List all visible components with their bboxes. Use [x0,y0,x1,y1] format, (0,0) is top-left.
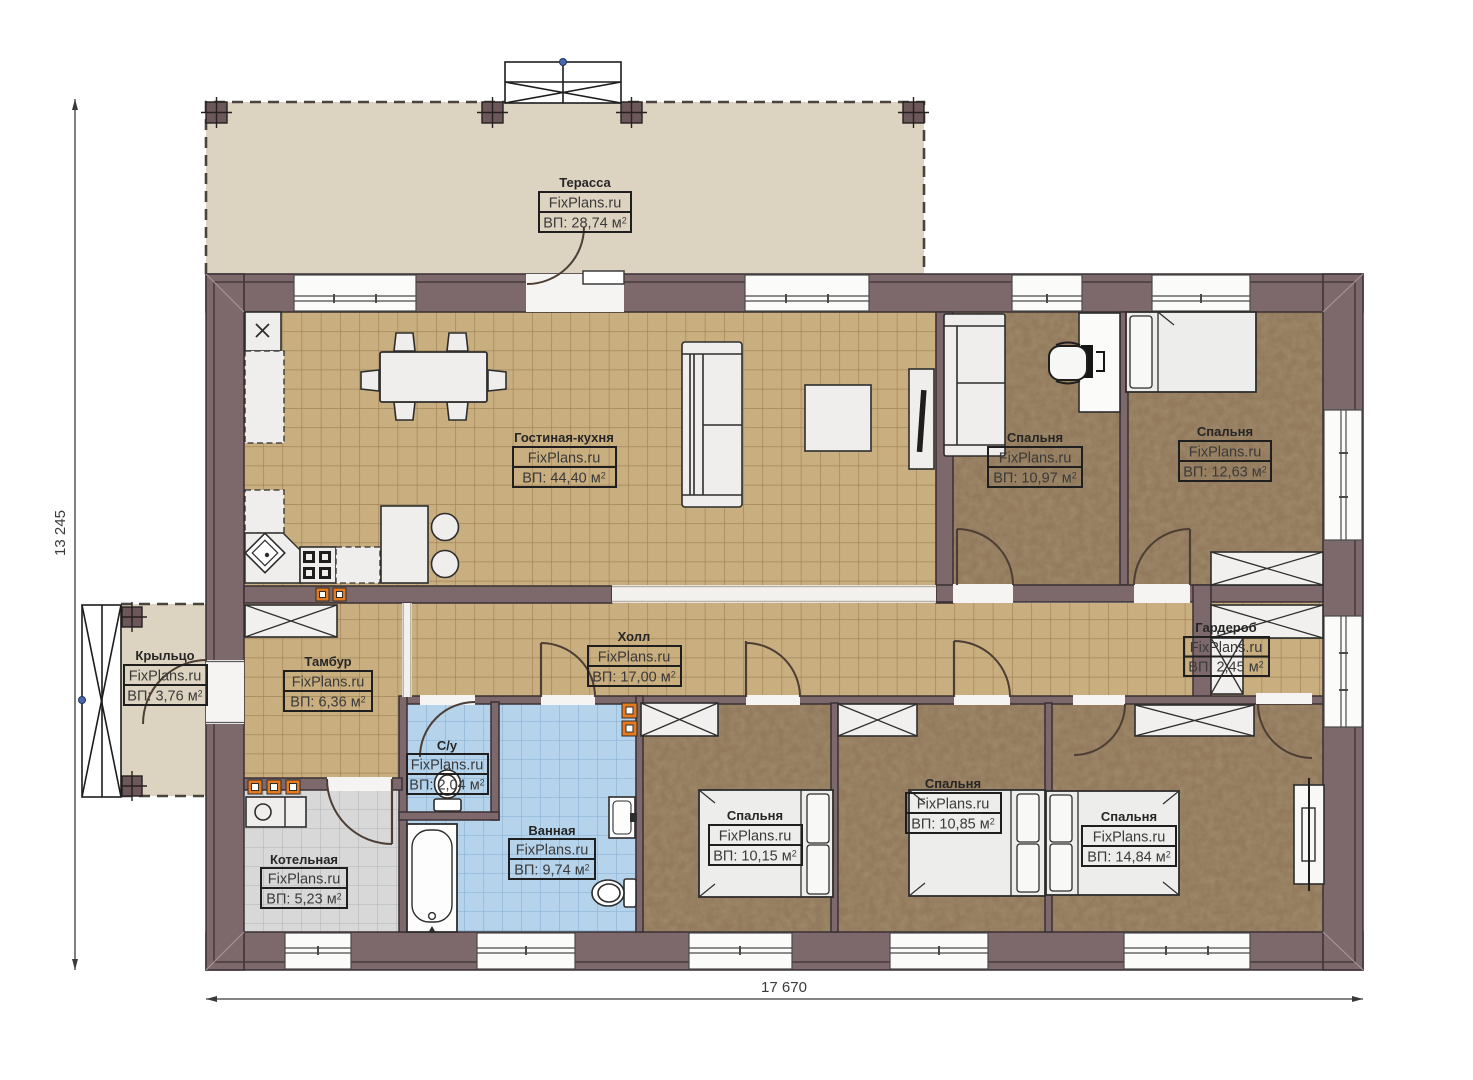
svg-text:ВП: 3,76 м2: ВП: 3,76 м2 [127,689,202,705]
svg-text:FixPlans.ru: FixPlans.ru [516,843,589,859]
svg-text:FixPlans.ru: FixPlans.ru [1190,640,1263,656]
svg-text:Крыльцо: Крыльцо [135,648,194,663]
svg-text:ВП: 2,04 м2: ВП: 2,04 м2 [409,778,484,794]
svg-text:Тамбур: Тамбур [304,654,351,669]
svg-text:FixPlans.ru: FixPlans.ru [598,650,671,666]
svg-text:ВП: 6,36 м2: ВП: 6,36 м2 [290,695,365,711]
svg-text:Спальня: Спальня [925,776,981,791]
svg-text:ВП: 10,85 м2: ВП: 10,85 м2 [911,817,994,833]
svg-text:Гостиная-кухня: Гостиная-кухня [514,430,614,445]
svg-text:ВП: 44,40 м2: ВП: 44,40 м2 [522,471,605,487]
svg-text:ВП: 12,63 м2: ВП: 12,63 м2 [1183,465,1266,481]
svg-text:ВП: 10,15 м2: ВП: 10,15 м2 [713,849,796,865]
svg-text:ВП: 14,84 м2: ВП: 14,84 м2 [1087,850,1170,866]
svg-text:FixPlans.ru: FixPlans.ru [1093,830,1166,846]
svg-text:FixPlans.ru: FixPlans.ru [999,451,1072,467]
svg-text:FixPlans.ru: FixPlans.ru [411,758,484,774]
svg-text:ВП: 5,23 м2: ВП: 5,23 м2 [266,892,341,908]
svg-text:FixPlans.ru: FixPlans.ru [129,669,202,685]
svg-text:FixPlans.ru: FixPlans.ru [719,829,792,845]
svg-text:FixPlans.ru: FixPlans.ru [917,797,990,813]
svg-text:13 245: 13 245 [52,510,69,556]
svg-text:С/у: С/у [437,738,458,753]
svg-text:Котельная: Котельная [270,852,338,867]
svg-text:Ванная: Ванная [528,823,575,838]
svg-text:Терасса: Терасса [559,175,611,190]
svg-text:Гардероб: Гардероб [1195,620,1256,635]
svg-text:ВП: 9,74 м2: ВП: 9,74 м2 [514,863,589,879]
svg-text:ВП: 2,45 м2: ВП: 2,45 м2 [1188,660,1263,676]
svg-text:17 670: 17 670 [761,979,807,996]
svg-text:FixPlans.ru: FixPlans.ru [1189,445,1262,461]
svg-text:ВП: 10,97 м2: ВП: 10,97 м2 [993,471,1076,487]
svg-text:Спальня: Спальня [727,808,783,823]
svg-text:Холл: Холл [618,629,651,644]
svg-text:Спальня: Спальня [1197,424,1253,439]
svg-text:FixPlans.ru: FixPlans.ru [528,451,601,467]
svg-text:Спальня: Спальня [1101,809,1157,824]
svg-text:FixPlans.ru: FixPlans.ru [292,675,365,691]
svg-text:Спальня: Спальня [1007,430,1063,445]
svg-text:FixPlans.ru: FixPlans.ru [268,872,341,888]
svg-text:FixPlans.ru: FixPlans.ru [549,196,622,212]
svg-text:ВП: 17,00 м2: ВП: 17,00 м2 [592,670,675,686]
svg-text:ВП: 28,74 м2: ВП: 28,74 м2 [543,216,626,232]
